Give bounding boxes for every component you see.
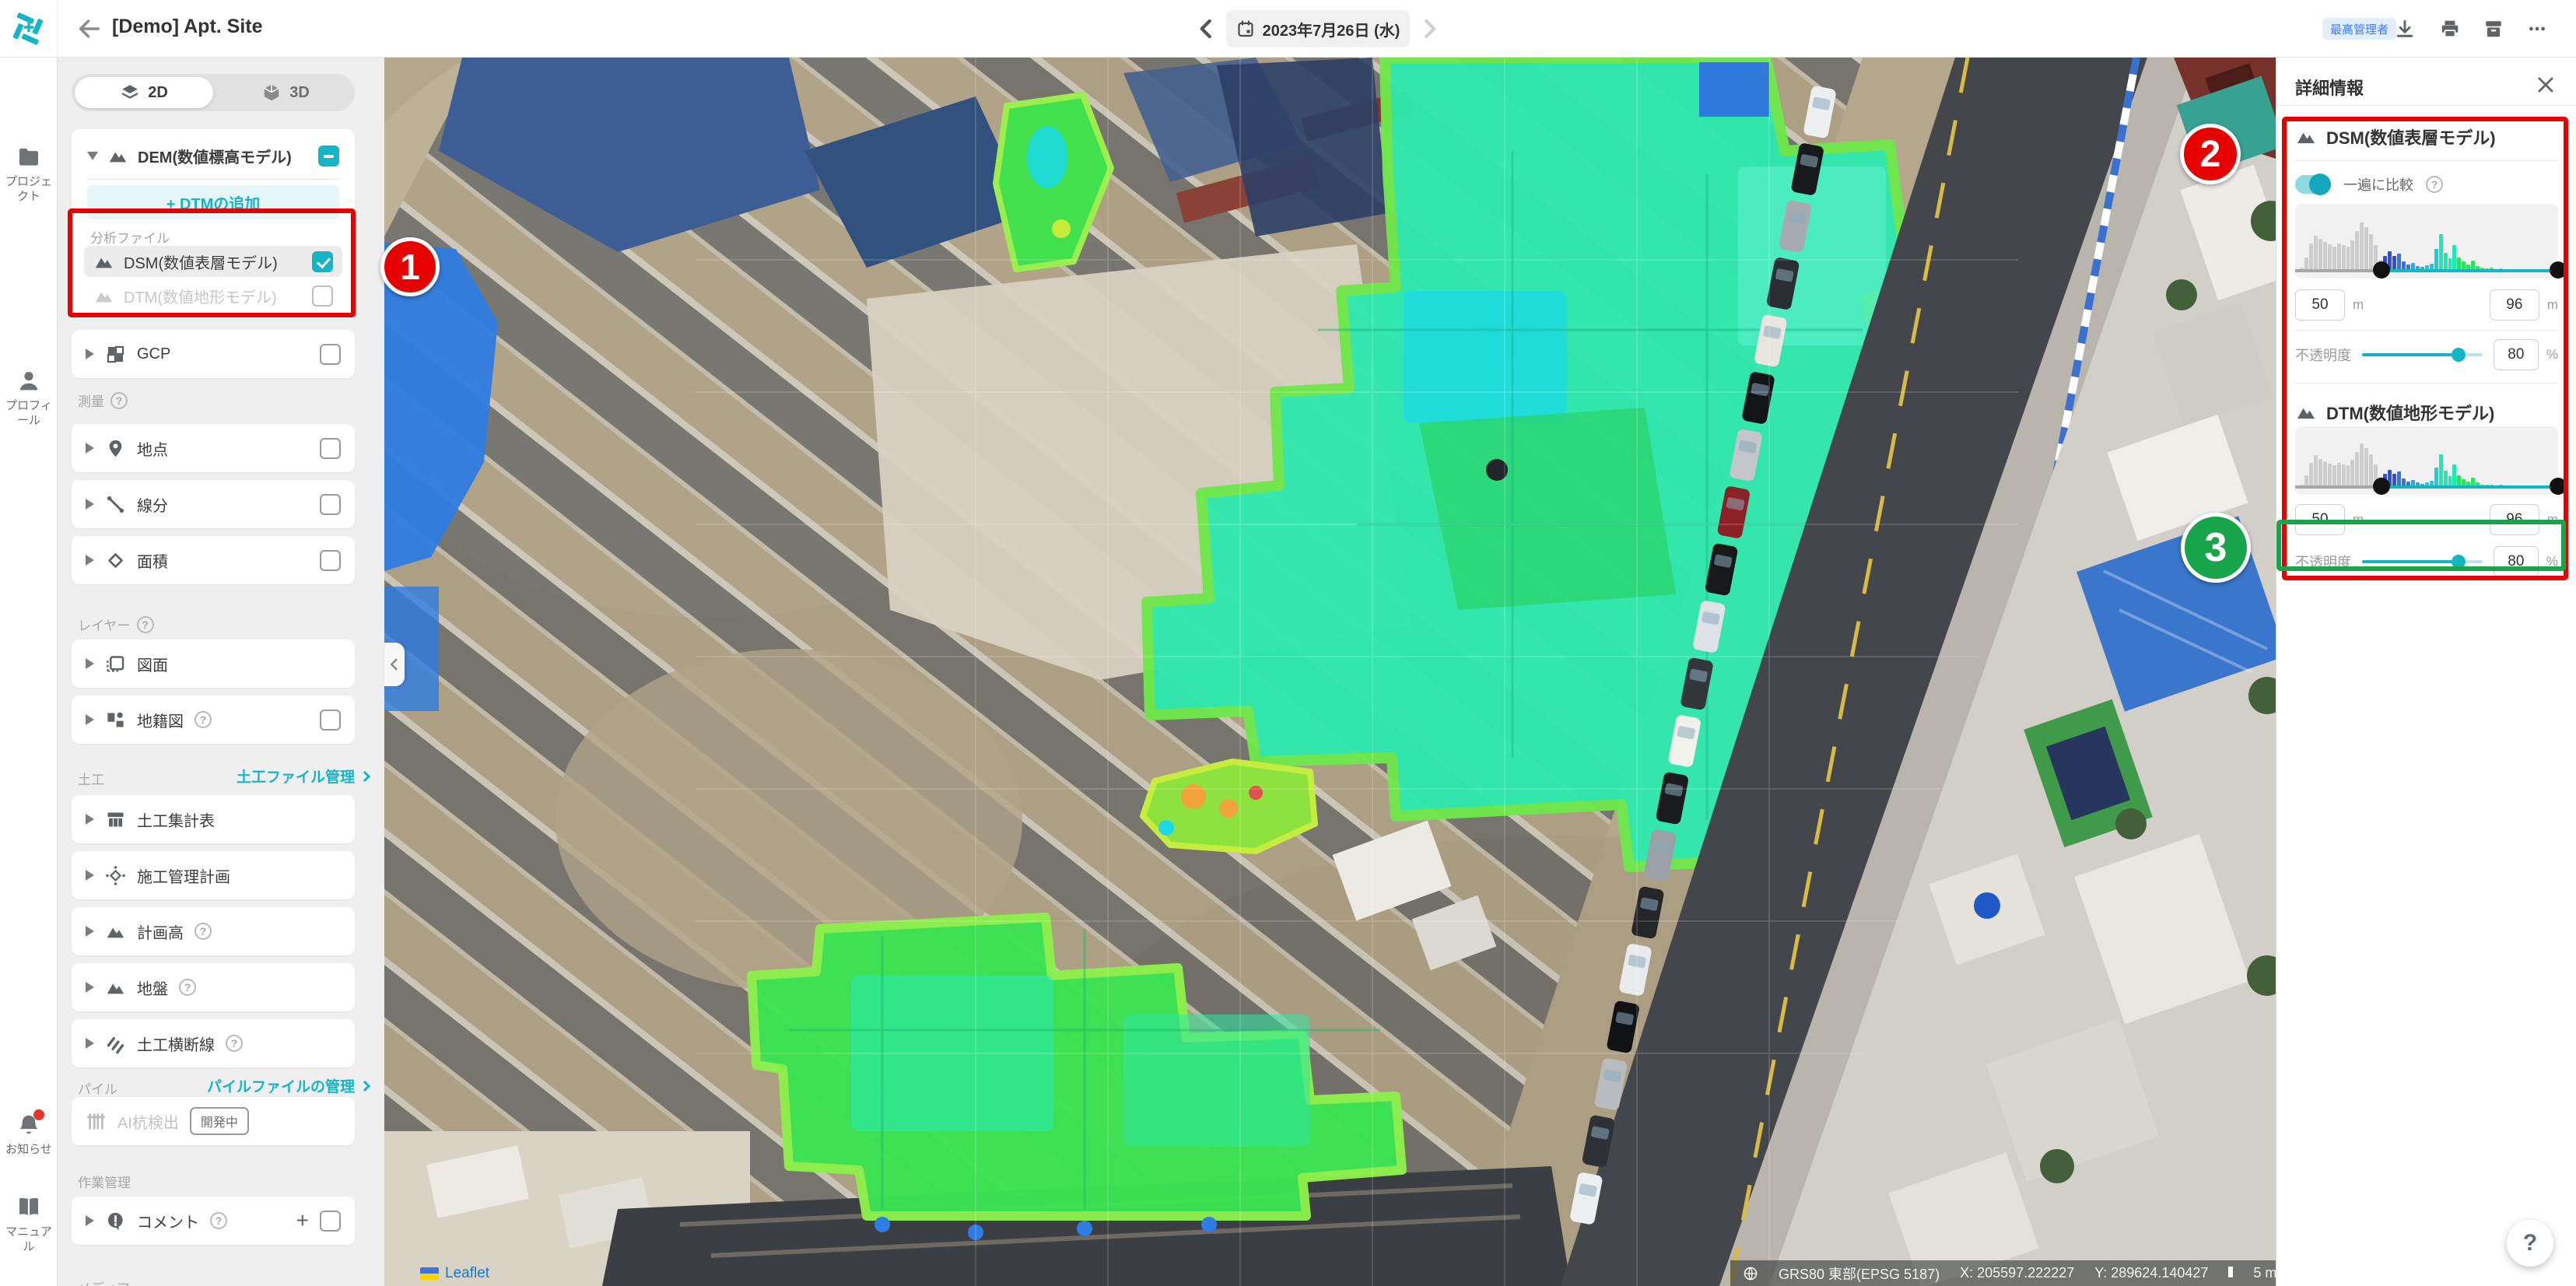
book-icon [16,1195,41,1220]
histogram-bar [2314,455,2318,487]
dsm-opacity-row: 不透明度 80 % [2295,339,2558,370]
dtm-opacity-row: 不透明度 80 % [2295,546,2558,577]
cursor-y: Y: 289624.140427 [2094,1265,2208,1281]
pin-icon [105,438,126,459]
area-label: 面積 [137,549,168,572]
rail-item-notifications[interactable]: お知らせ [0,1113,58,1157]
help-icon[interactable]: ? [210,1212,227,1229]
mountain-icon [2295,401,2317,423]
app-logo[interactable] [0,0,58,57]
cube-icon [261,82,282,103]
layers-sidebar: 2D 3D DEM(数値標高モデル) + DTMの追加 分析ファイル DSM(数… [58,58,384,1286]
scale-label: 5 m [2253,1265,2276,1281]
logo-icon [12,12,45,45]
point-checkbox[interactable] [320,438,341,459]
hatch-lines-icon [105,1033,126,1054]
help-icon[interactable]: ? [179,979,196,996]
globe-icon [1743,1266,1758,1281]
layers-section-label: レイヤー? [78,615,154,634]
histogram-bar [2323,242,2327,271]
divider [2295,160,2558,161]
leaflet-link[interactable]: Leaflet [445,1265,489,1282]
dtm-section-title: DTM(数値地形モデル) [2295,400,2494,425]
annotation-circle-2: 2 [2180,124,2241,184]
ai-pile-label: AI杭検出 [117,1110,179,1133]
aerial-map [384,58,2276,1286]
role-badge: 最高管理者 [2322,18,2396,40]
map-viewport[interactable]: 現場比較 ツールを追加する [384,58,2276,1286]
histogram-bar [2364,227,2368,271]
rail-label: プロジェクト [0,174,58,204]
comment-checkbox[interactable] [320,1211,341,1232]
rail-item-manual[interactable]: マニュアル [0,1195,58,1254]
segment-card[interactable]: 線分 [72,480,355,528]
point-card[interactable]: 地点 [72,424,355,472]
help-icon[interactable]: ? [195,923,212,940]
histogram-bar [2434,249,2438,271]
survey-section-label: 測量? [78,391,128,410]
comment-card[interactable]: コメント ? + [72,1197,355,1245]
gcp-card[interactable]: GCP [72,330,355,378]
range-handle-max[interactable] [2550,478,2567,495]
rail-label: プロフィール [0,398,58,428]
cadastral-checkbox[interactable] [320,710,341,731]
in-development-badge: 開発中 [190,1107,249,1135]
compare-toggle[interactable] [2295,175,2331,194]
divider [2295,330,2558,331]
help-button[interactable]: ? [2507,1220,2553,1267]
dtm-checkbox[interactable] [312,286,333,307]
pile-section-label: パイル [78,1078,117,1098]
help-icon[interactable]: ? [226,1035,243,1052]
chevron-right-icon [359,770,370,781]
opacity-slider[interactable] [2362,353,2483,356]
caret-right-icon [86,658,94,669]
histogram-bar [2350,460,2354,487]
histogram-bar [2309,463,2313,488]
chevron-right-icon [359,1080,370,1091]
area-checkbox[interactable] [320,550,341,571]
drawing-label: 図面 [137,653,168,675]
ground-card[interactable]: 地盤 ? [72,963,355,1011]
dsm-layer-row[interactable]: DSM(数値表層モデル) [84,246,342,277]
annotation-circle-3: 3 [2181,513,2251,583]
dtm-layer-row[interactable]: DTM(数値地形モデル) [84,280,342,311]
histogram-bar [2346,247,2350,271]
scale-bar [2228,1267,2233,1277]
item-label: 土工横断線 [137,1032,215,1055]
line-icon [105,494,126,515]
crs-label: GRS80 東部(EPSG 5187) [1779,1263,1940,1284]
histogram-bar [2397,254,2401,271]
range-handle-max[interactable] [2550,261,2567,279]
left-rail: プロジェクト プロフィール お知らせ マニュアル [0,58,58,1286]
histogram-bar [2332,247,2336,271]
panel-title: 詳細情報 [2295,75,2364,100]
caret-right-icon [86,349,94,359]
piles-icon [86,1111,107,1132]
earthwork-section-label: 土工 [78,769,104,788]
archive-button[interactable] [2483,19,2504,39]
help-icon[interactable]: ? [195,711,212,728]
cadastral-icon [105,710,126,731]
histogram-bar [2439,454,2443,487]
item-label: 土工集計表 [137,808,215,831]
percent-label: % [2546,554,2558,569]
add-dtm-button[interactable]: + DTMの追加 [87,185,339,219]
page-title: [Demo] Apt. Site [112,16,263,38]
opacity-value-input[interactable]: 80 [2494,546,2539,577]
percent-label: % [2546,347,2558,363]
caret-down-icon [87,152,98,160]
histogram-bar [2360,443,2364,487]
histogram-bar [2355,452,2359,488]
histogram-bar [2342,464,2346,487]
help-icon[interactable]: ? [110,392,128,409]
dsm-range-values: 50 m 96 m [2295,289,2558,321]
dashed-square-icon [105,654,126,675]
date-prev-button[interactable] [1195,17,1218,40]
gcp-grid-icon [105,344,126,365]
item-label: 施工管理計画 [137,864,230,887]
max-value-input[interactable]: 96 [2490,289,2539,321]
earthwork-manage-link[interactable]: 土工ファイル管理 [237,766,369,787]
date-next-button[interactable] [1418,17,1441,40]
histogram-bar [2328,244,2332,271]
gcp-label: GCP [137,345,170,363]
add-comment-button[interactable]: + [296,1208,309,1233]
ai-pile-card[interactable]: AI杭検出 開発中 [72,1097,355,1145]
histogram-bar [2452,245,2456,271]
mountain-icon [93,251,114,272]
help-icon[interactable]: ? [137,616,154,633]
unit-label: m [2547,512,2558,527]
histogram-bar [2309,244,2313,271]
download-button[interactable] [2395,19,2415,39]
dem-header[interactable]: DEM(数値標高モデル) [87,140,339,171]
divider [2276,105,2576,106]
tab-2d-label: 2D [148,84,168,102]
back-button[interactable] [76,16,103,42]
caret-right-icon [86,982,94,993]
current-date: 2023年7月26日 (水) [1263,18,1400,40]
view-mode-toggle: 2D 3D [72,74,355,111]
range-track-active [2381,269,2563,272]
range-track-active [2381,485,2563,489]
unit-label: m [2353,297,2364,313]
person-icon [16,369,41,394]
pile-manage-link[interactable]: パイルファイルの管理 [207,1075,369,1096]
dsm-histogram [2295,204,2558,279]
caret-right-icon [86,1215,94,1226]
point-label: 地点 [137,437,168,460]
dem-checkbox[interactable] [318,145,339,166]
histogram-bar [2323,461,2327,487]
media-section-label: メディア [78,1277,130,1286]
histogram-bar [2434,468,2438,487]
bell-icon [16,1113,41,1137]
divider [2295,383,2558,384]
dtm-label: DTM(数値地形モデル) [124,285,277,307]
max-value-input[interactable]: 96 [2490,504,2539,535]
table-icon [105,809,126,830]
work-section-label: 作業管理 [78,1172,131,1191]
mountain-icon [107,145,128,166]
date-picker[interactable]: 2023年7月26日 (水) [1226,10,1410,47]
tab-2d[interactable]: 2D [75,77,213,108]
dem-title: DEM(数値標高モデル) [138,145,292,167]
area-card[interactable]: 面積 [72,536,355,584]
plan-diamond-icon [105,865,126,886]
more-menu-button[interactable] [2527,19,2547,39]
rail-label: マニュアル [0,1225,58,1254]
mountain-icon [105,977,126,998]
caret-right-icon [86,870,94,881]
histogram-bar [2346,465,2350,487]
drawing-card[interactable]: 図面 [72,639,355,688]
range-handle-min[interactable] [2373,261,2390,279]
item-label: 計画高 [137,920,184,943]
min-value-input[interactable]: 50 [2295,289,2345,321]
range-track-below [2295,269,2381,272]
top-bar: [Demo] Apt. Site 2023年7月26日 (水) 最高管理者 [0,0,2576,58]
mountain-icon [93,286,114,307]
histogram-bar [2342,245,2346,271]
histogram-bar [2318,459,2322,487]
tab-3d-label: 3D [289,84,310,102]
histogram-bar [2452,464,2456,487]
sidebar-collapse-handle[interactable] [384,643,405,686]
toggle-label: 一遍に比較 [2343,174,2413,194]
histogram-bar [2350,240,2354,271]
histogram-bar [2360,223,2364,271]
caret-right-icon [86,499,94,510]
histogram-bar [2328,464,2332,487]
range-handle-min[interactable] [2373,478,2390,495]
histogram-bar [2444,471,2448,487]
gcp-checkbox[interactable] [320,344,341,365]
caret-right-icon [86,555,94,566]
analysis-files-label: 分析ファイル [90,227,170,247]
rail-label: お知らせ [0,1142,58,1157]
diamond-icon [105,550,126,571]
close-icon[interactable] [2536,75,2556,95]
divider [87,179,339,180]
opacity-value-input[interactable]: 80 [2494,339,2539,370]
histogram-bar [2337,244,2341,271]
mountain-icon [105,921,126,942]
caret-right-icon [86,814,94,825]
dsm-section-title: DSM(数値表層モデル) [2295,124,2496,149]
rail-item-projects[interactable]: プロジェクト [0,145,58,204]
histogram-bar [2444,253,2448,271]
caret-right-icon [86,926,94,937]
annotation-circle-1: 1 [380,237,440,296]
unit-label: m [2547,297,2558,313]
tab-3d[interactable]: 3D [216,74,355,111]
segment-label: 線分 [137,493,168,516]
min-value-input[interactable]: 50 [2295,504,2345,535]
construction-plan-card[interactable]: 施工管理計画 [72,851,355,899]
caret-right-icon [86,714,94,725]
print-button[interactable] [2440,19,2460,39]
dtm-histogram [2295,426,2558,495]
item-label: 地盤 [137,976,168,999]
map-status-bar: GRS80 東部(EPSG 5187) X: 205597.222227 Y: … [1730,1260,2276,1286]
mountain-icon [2295,126,2317,148]
unit-label: m [2353,512,2364,527]
dtm-range-values: 50 m 96 m [2295,504,2558,535]
opacity-label: 不透明度 [2295,552,2351,572]
cross-section-card[interactable]: 土工横断線 ? [72,1019,355,1067]
histogram-bar [2364,448,2368,487]
map-attribution: Leaflet [420,1265,489,1282]
earthwork-summary-card[interactable]: 土工集計表 [72,795,355,843]
histogram-bar [2369,234,2373,271]
cursor-x: X: 205597.222227 [1960,1265,2074,1281]
cadastral-label: 地籍図 [137,709,184,731]
caret-right-icon [86,443,94,454]
ukraine-flag-icon [420,1267,439,1280]
caret-right-icon [86,1038,94,1049]
detail-panel: 詳細情報 DSM(数値表層モデル) 一遍に比較 ? 50 m 96 m 不透明度… [2276,58,2576,1286]
layers-icon [120,82,140,103]
folder-icon [16,145,41,170]
comment-label: コメント [137,1210,199,1232]
opacity-slider[interactable] [2362,560,2483,563]
compare-toggle-row: 一遍に比較 ? [2295,174,2443,194]
range-track-below [2295,485,2381,489]
histogram-bar [2439,234,2443,271]
help-icon[interactable]: ? [2426,176,2443,193]
dsm-label: DSM(数値表層モデル) [124,251,278,273]
cadastral-card[interactable]: 地籍図 ? [72,696,355,744]
comment-icon [105,1211,126,1232]
notification-dot [33,1109,44,1120]
segment-checkbox[interactable] [320,494,341,515]
calendar-icon [1236,19,1255,38]
dsm-checkbox[interactable] [312,251,333,272]
histogram-bar [2337,463,2341,488]
planned-height-card[interactable]: 計画高 ? [72,907,355,955]
opacity-label: 不透明度 [2295,345,2351,365]
histogram-bar [2332,465,2336,487]
dem-card: DEM(数値標高モデル) + DTMの追加 分析ファイル DSM(数値表層モデル… [72,129,355,319]
histogram-bar [2314,236,2318,271]
histogram-bar [2318,239,2322,271]
rail-item-profile[interactable]: プロフィール [0,369,58,428]
histogram-bar [2355,231,2359,271]
